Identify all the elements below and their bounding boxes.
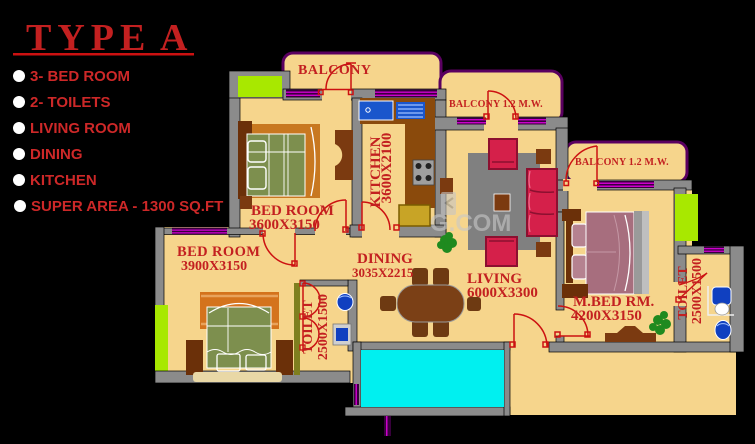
svg-text:3600X3150: 3600X3150 (249, 217, 320, 233)
svg-text:3035X2215: 3035X2215 (352, 265, 414, 280)
svg-text:2500X1500: 2500X1500 (316, 294, 331, 360)
svg-text:DINING: DINING (30, 146, 83, 163)
svg-text:BALCONY: BALCONY (298, 63, 372, 78)
svg-text:BALCONY 1.2 M.W.: BALCONY 1.2 M.W. (449, 99, 543, 110)
svg-text:3600X2100: 3600X2100 (379, 133, 395, 204)
svg-text:BALCONY 1.2 M.W.: BALCONY 1.2 M.W. (575, 157, 669, 168)
svg-text:SUPER AREA - 1300 SQ.FT: SUPER AREA - 1300 SQ.FT (31, 198, 223, 215)
svg-text:KITCHEN: KITCHEN (30, 172, 97, 189)
svg-text:3- BED ROOM: 3- BED ROOM (30, 68, 130, 85)
svg-text:A: A (160, 17, 188, 59)
svg-text:2500X1500: 2500X1500 (690, 258, 705, 324)
svg-text:2- TOILETS: 2- TOILETS (30, 94, 111, 111)
svg-text:BED ROOM: BED ROOM (177, 244, 260, 260)
svg-text:4200X3150: 4200X3150 (571, 308, 642, 324)
svg-text:LIVING ROOM: LIVING ROOM (30, 120, 131, 137)
svg-text:G.COM: G.COM (430, 210, 511, 237)
svg-text:TOILET: TOILET (301, 300, 316, 354)
svg-text:TOILET: TOILET (676, 266, 691, 320)
svg-text:3900X3150: 3900X3150 (181, 259, 247, 274)
svg-text:TYPE: TYPE (26, 17, 151, 59)
svg-text:6000X3300: 6000X3300 (467, 285, 538, 301)
